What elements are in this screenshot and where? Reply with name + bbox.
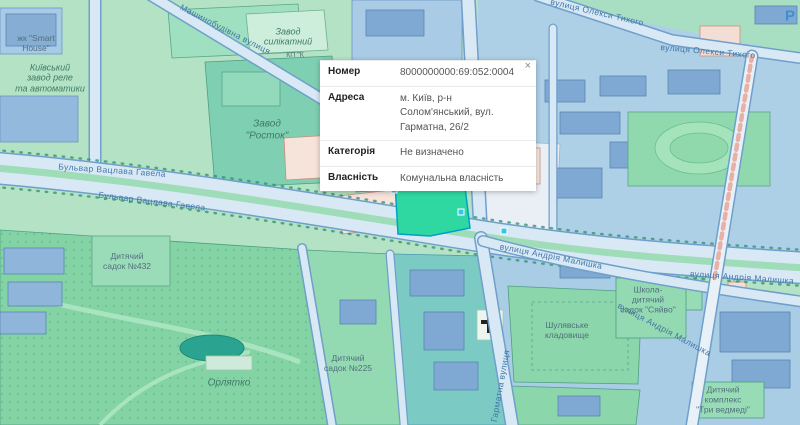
popup-row-address: Адреса м. Київ, р-н Солом'янський, вул. … [320,86,536,141]
info-popup: × Номер 8000000000:69:052:0004 Адреса м.… [320,60,536,191]
popup-row-label: Номер [328,66,396,77]
vertex-handle[interactable] [458,209,464,215]
popup-row-value: Комунальна власність [400,172,524,187]
popup-row-label: Адреса [328,92,396,103]
map-canvas[interactable]: жк "Smart House" Київський завод реле та… [0,0,800,425]
popup-row-value: м. Київ, р-н Солом'янський, вул. Гарматн… [400,92,524,136]
popup-row-label: Власність [328,172,396,183]
popup-row-ownership: Власність Комунальна власність [320,166,536,192]
popup-row-value: 8000000000:69:052:0004 [400,66,524,81]
popup-close-button[interactable]: × [525,61,531,72]
popup-row-number: Номер 8000000000:69:052:0004 [320,60,536,86]
popup-row-value: Не визначено [400,146,524,161]
park-area [0,230,332,425]
popup-row-category: Категорія Не визначено [320,140,536,166]
vertex-handle[interactable] [501,228,507,234]
popup-row-label: Категорія [328,146,396,157]
